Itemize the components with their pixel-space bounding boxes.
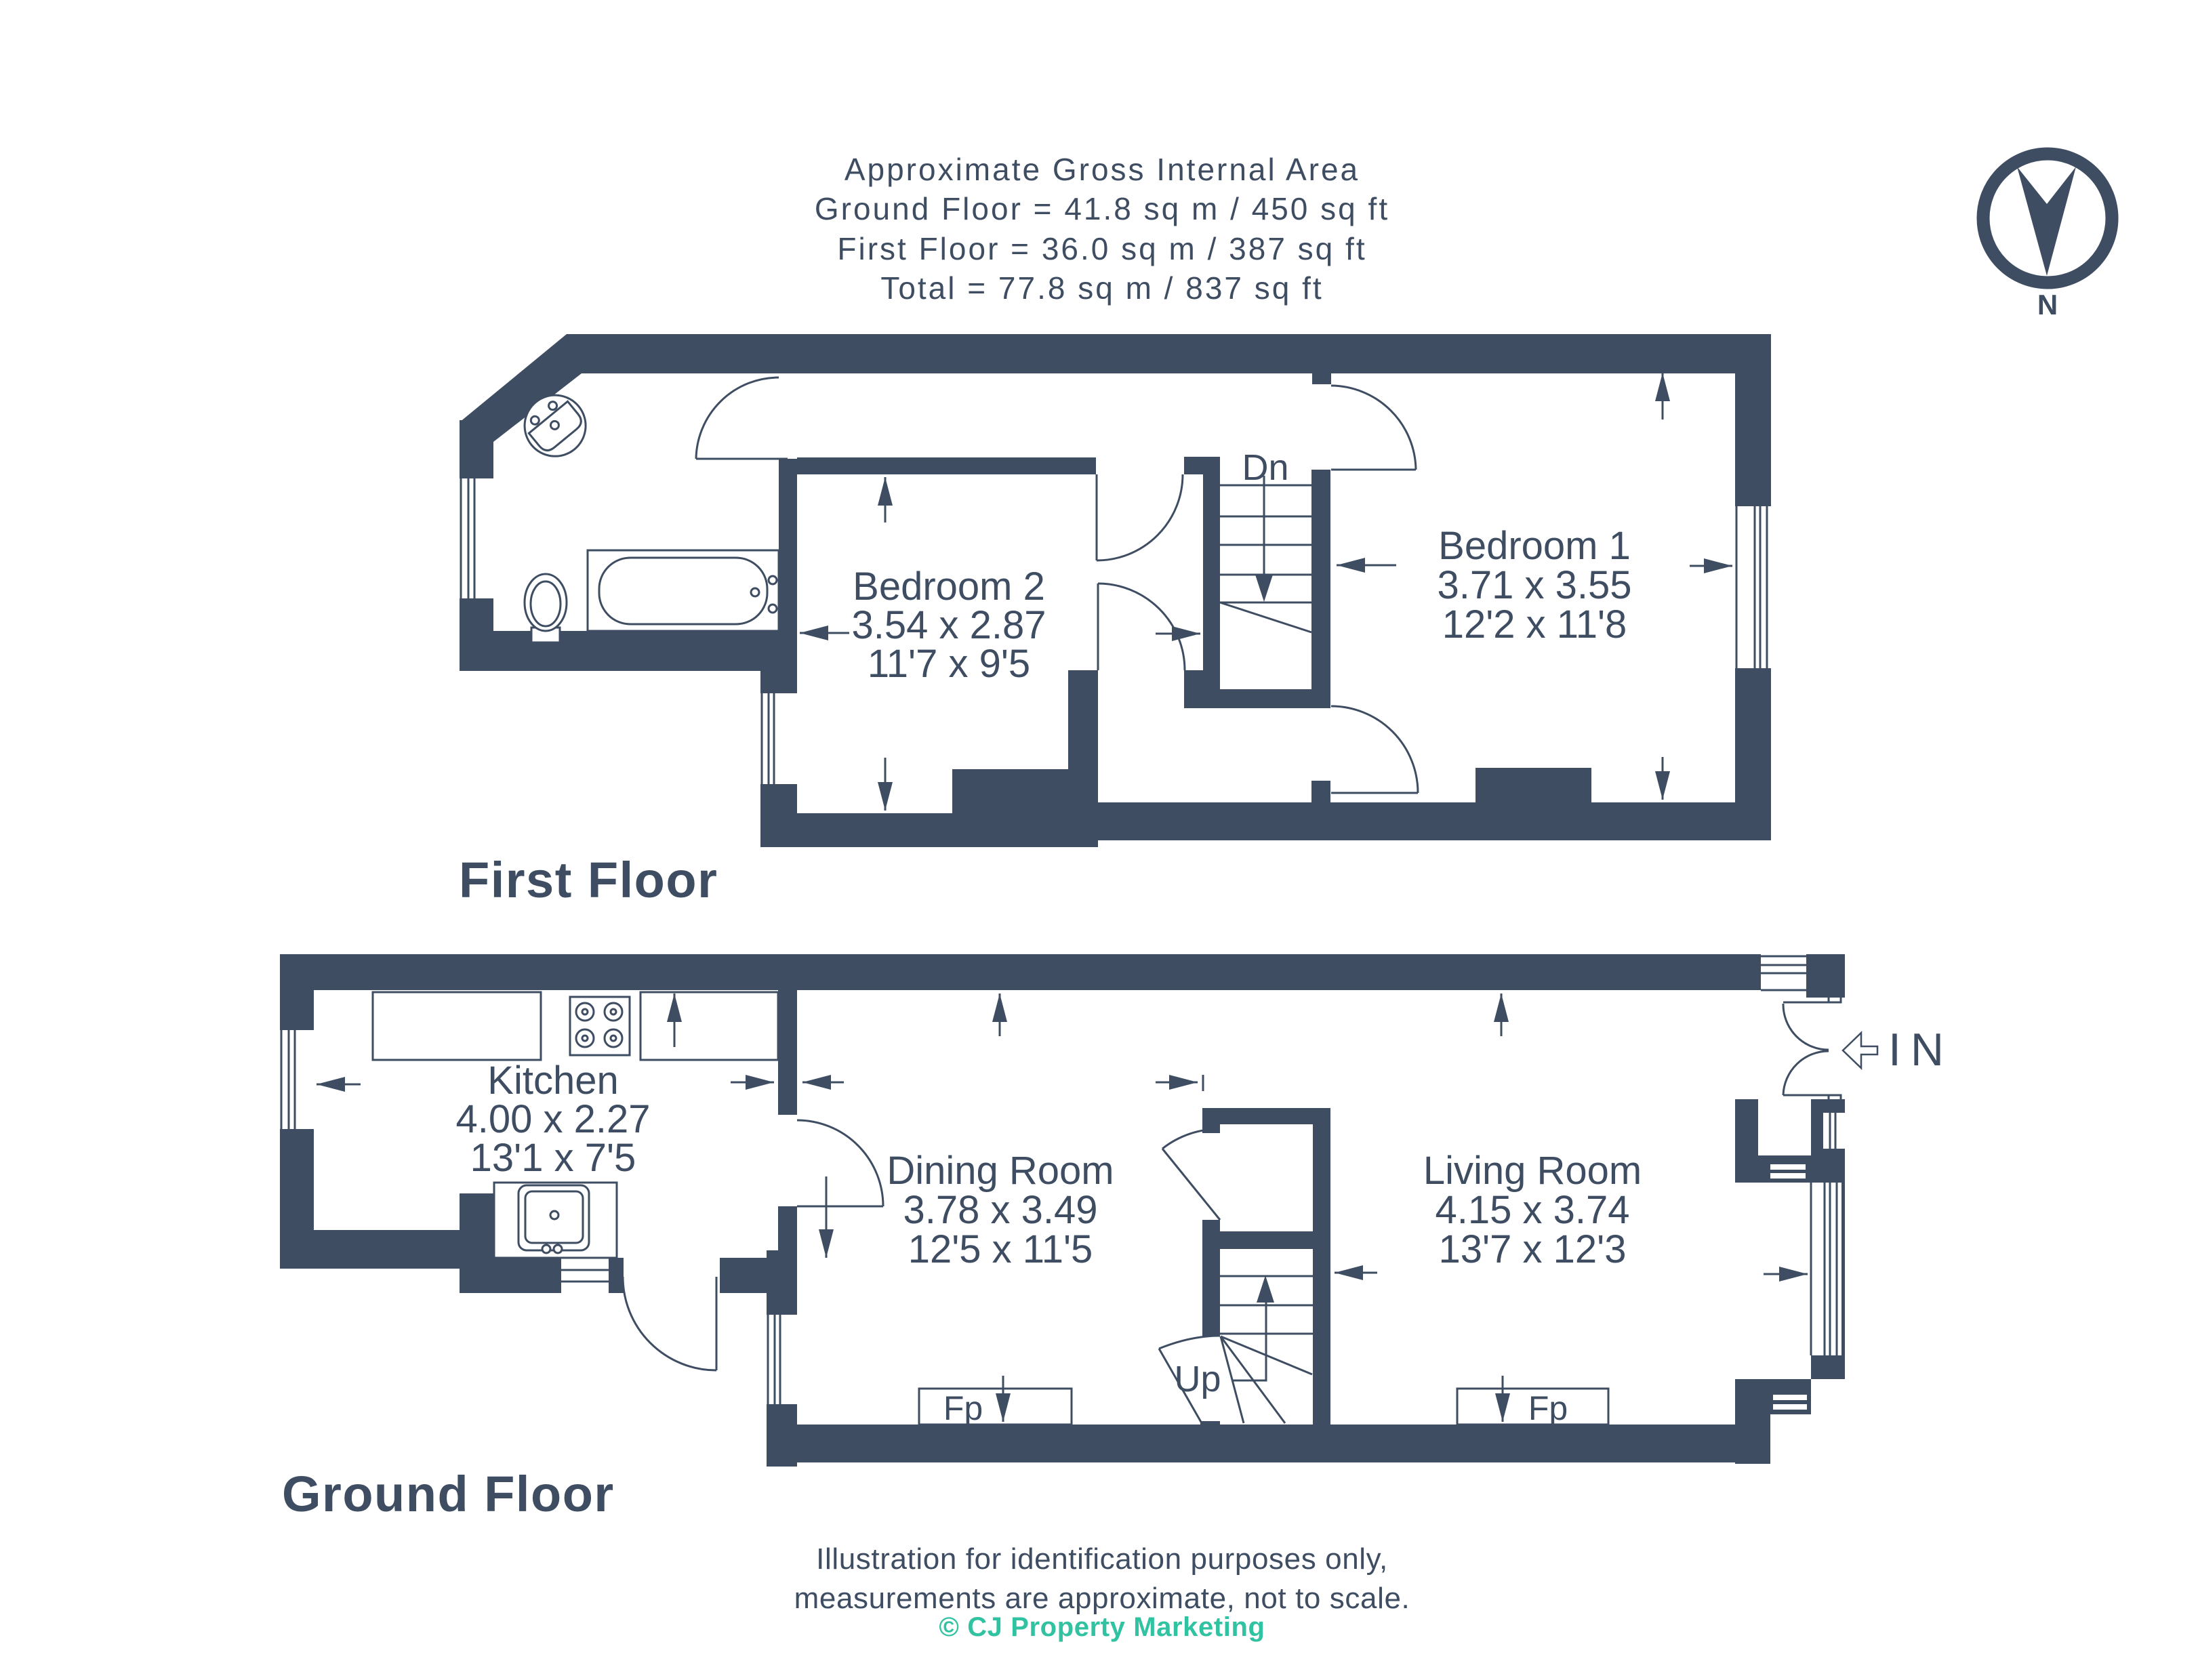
svg-text:IN: IN xyxy=(1888,1024,1953,1075)
svg-text:13'1 x 7'5: 13'1 x 7'5 xyxy=(470,1136,636,1180)
svg-text:3.78 x 3.49: 3.78 x 3.49 xyxy=(903,1188,1098,1232)
svg-text:First Floor = 36.0 sq m / 387: First Floor = 36.0 sq m / 387 sq ft xyxy=(837,231,1366,266)
svg-text:12'2 x 11'8: 12'2 x 11'8 xyxy=(1442,602,1627,647)
svg-text:© CJ Property Marketing: © CJ Property Marketing xyxy=(939,1612,1265,1642)
svg-text:11'7 x 9'5: 11'7 x 9'5 xyxy=(868,642,1030,686)
svg-text:Kitchen: Kitchen xyxy=(487,1059,618,1103)
svg-text:N: N xyxy=(2037,289,2058,321)
svg-text:3.71 x 3.55: 3.71 x 3.55 xyxy=(1438,563,1632,607)
svg-text:13'7 x 12'3: 13'7 x 12'3 xyxy=(1439,1227,1627,1271)
svg-text:Ground Floor: Ground Floor xyxy=(282,1466,615,1522)
svg-text:Bedroom 1: Bedroom 1 xyxy=(1438,524,1631,568)
svg-text:Dn: Dn xyxy=(1242,447,1288,488)
svg-text:3.54 x 2.87: 3.54 x 2.87 xyxy=(852,603,1046,647)
svg-text:Fp: Fp xyxy=(943,1389,983,1427)
svg-text:Living Room: Living Room xyxy=(1423,1149,1642,1193)
svg-text:Ground Floor = 41.8 sq m / 450: Ground Floor = 41.8 sq m / 450 sq ft xyxy=(815,191,1389,226)
svg-text:Up: Up xyxy=(1174,1359,1221,1399)
svg-text:Dining Room: Dining Room xyxy=(887,1149,1114,1193)
svg-text:First Floor: First Floor xyxy=(459,852,718,908)
svg-text:12'5 x 11'5: 12'5 x 11'5 xyxy=(908,1227,1093,1271)
svg-text:4.00 x 2.27: 4.00 x 2.27 xyxy=(456,1097,651,1141)
svg-text:Bedroom 2: Bedroom 2 xyxy=(853,565,1045,609)
svg-text:Illustration for identificatio: Illustration for identification purposes… xyxy=(816,1542,1388,1576)
svg-text:Fp: Fp xyxy=(1528,1389,1568,1427)
svg-text:4.15 x 3.74: 4.15 x 3.74 xyxy=(1436,1188,1630,1232)
svg-text:measurements are approximate,: measurements are approximate, not to sca… xyxy=(794,1582,1410,1615)
svg-text:Total = 77.8 sq m / 837 sq ft: Total = 77.8 sq m / 837 sq ft xyxy=(880,270,1323,306)
svg-text:Approximate Gross Internal Are: Approximate Gross Internal Area xyxy=(844,152,1360,187)
